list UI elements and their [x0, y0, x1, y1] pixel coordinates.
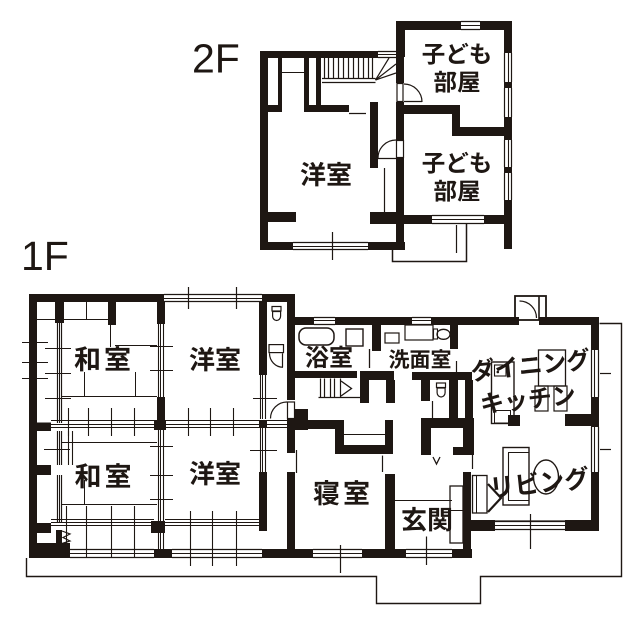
- svg-text:1F: 1F: [21, 233, 69, 279]
- svg-text:2F: 2F: [192, 36, 240, 82]
